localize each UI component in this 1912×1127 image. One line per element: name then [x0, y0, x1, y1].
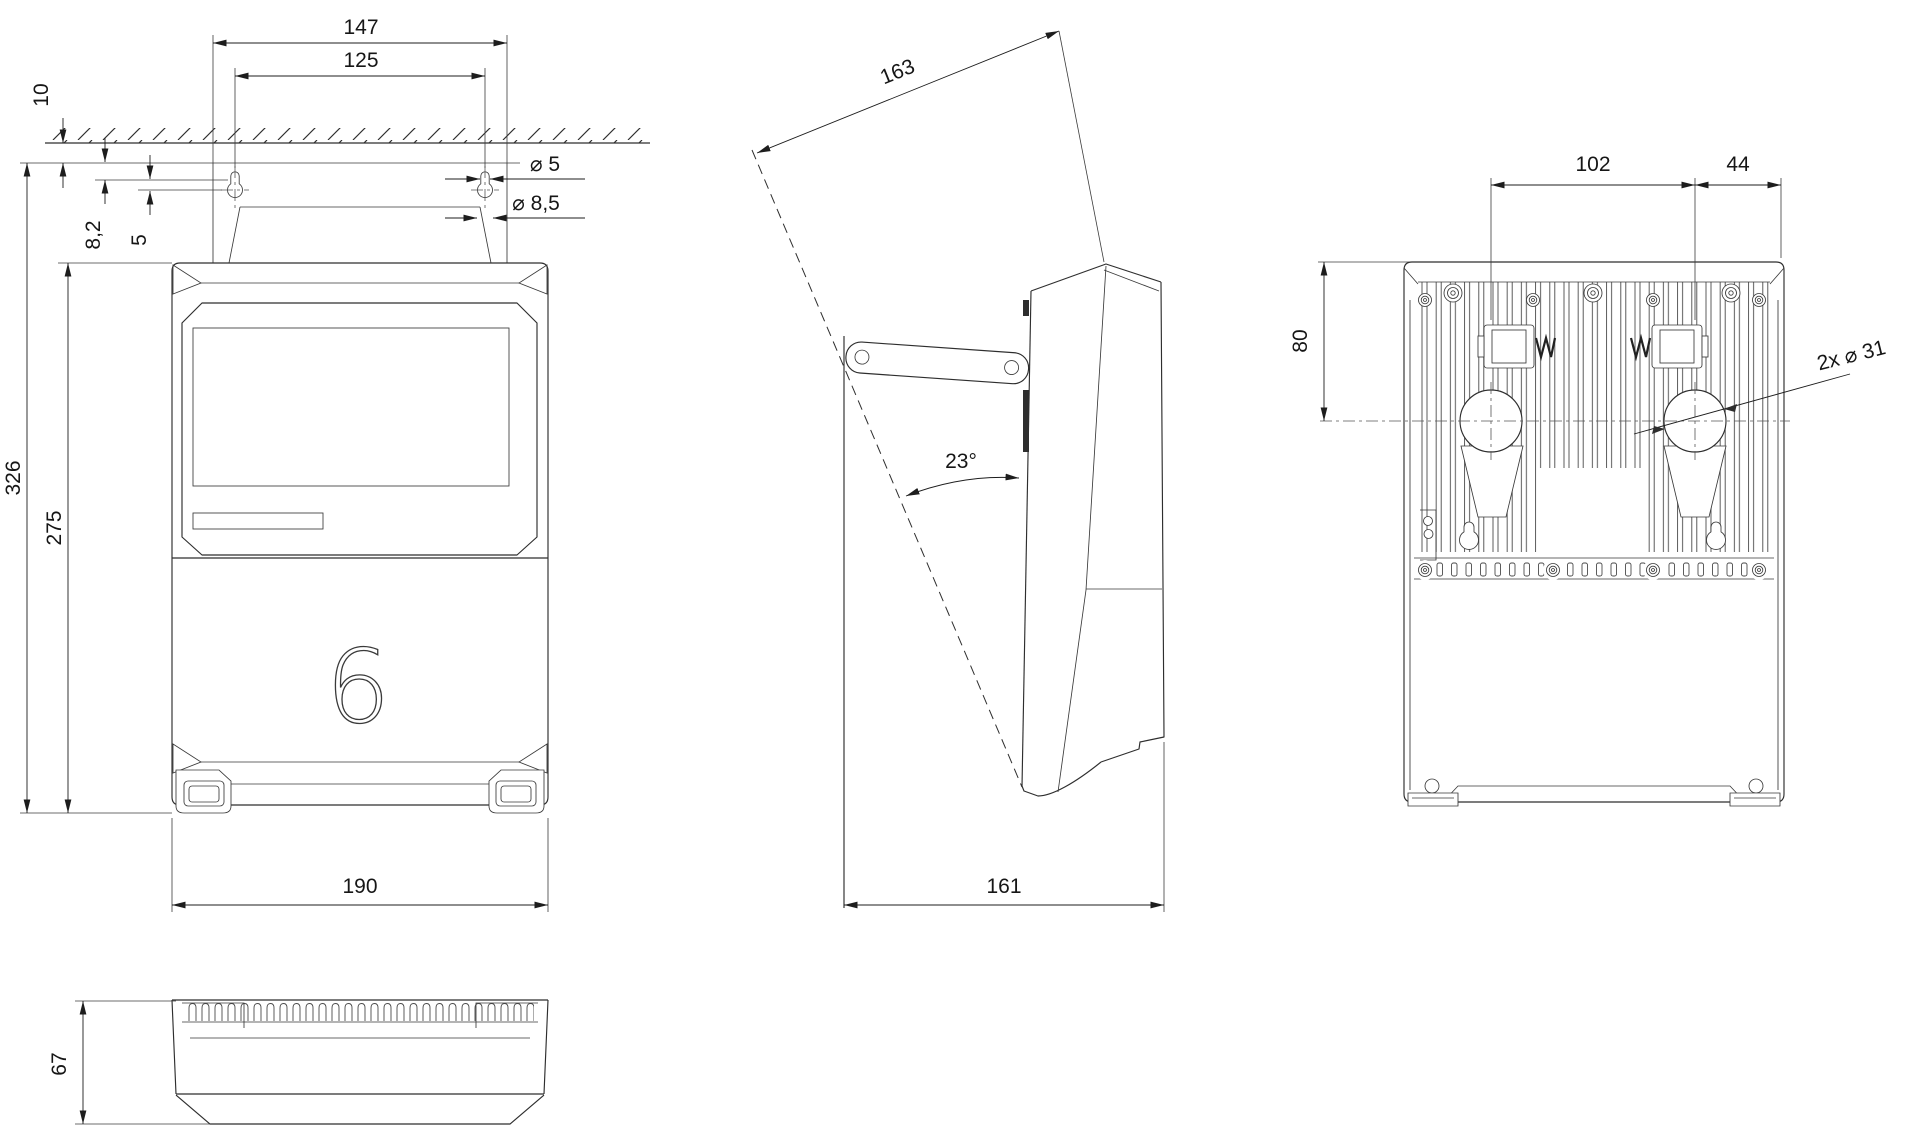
screw-icon [1419, 564, 1432, 577]
bottom-inner-lines [182, 1022, 538, 1038]
dim-front-hole-dia: ⌀ 8,5 [512, 192, 560, 215]
dim-front-plate-width: 147 [343, 16, 378, 39]
screw-icon [1753, 564, 1766, 577]
side-top-edge [1031, 264, 1161, 291]
vent-slot-row [1418, 561, 1770, 578]
dim-side-depth: 161 [986, 875, 1021, 898]
side-top-inner [1104, 270, 1159, 291]
dim-front-slot-dia: ⌀ 5 [530, 153, 560, 176]
dim-front-slot-top-offset: 8,2 [82, 220, 105, 249]
dim-front-body-width: 190 [342, 875, 377, 898]
rear-hook-upper [1023, 300, 1029, 316]
front-view: 147 125 10 8,2 5 ⌀ 5 ⌀ 8,5 326 275 [2, 16, 650, 912]
bottom-front-bevel [176, 1095, 544, 1124]
mounting-plate-edges [213, 163, 507, 263]
dim-front-hole-spacing: 125 [343, 49, 378, 72]
technical-drawing-page: 147 125 10 8,2 5 ⌀ 5 ⌀ 8,5 326 275 [0, 0, 1912, 1127]
dim-rear-hook-to-edge: 44 [1726, 153, 1750, 176]
dim-front-body-height: 275 [43, 510, 66, 545]
dimension-drawing: 147 125 10 8,2 5 ⌀ 5 ⌀ 8,5 326 275 [0, 0, 1912, 1127]
dim-front-slot-length: 5 [128, 234, 151, 246]
screw-icon [1419, 294, 1432, 307]
mounting-plate-trapezoid [229, 207, 491, 263]
side-silhouette-edge [1058, 266, 1106, 792]
screw-icon [1547, 564, 1560, 577]
dim-side-tilt-length: 163 [877, 55, 918, 89]
central-recess [1538, 468, 1648, 552]
rear-foot-right [1730, 793, 1780, 806]
side-front-face [1101, 282, 1164, 762]
screw-icon [1722, 284, 1740, 302]
rear-view: 102 44 80 2x ⌀ 31 [1289, 153, 1888, 806]
angle-arc-23 [906, 477, 1019, 496]
bottom-view: 67 [48, 1000, 548, 1124]
screw-icon [1584, 284, 1602, 302]
wall-bracket-arm [845, 341, 1030, 385]
brand-logo-6: 6 [326, 628, 391, 747]
dim-rear-entry-offset: 80 [1289, 329, 1312, 352]
tilt-position-dashed-line [752, 150, 1022, 787]
screw-icon [1647, 294, 1660, 307]
dim-line-163 [757, 31, 1059, 153]
dim-bottom-depth: 67 [48, 1052, 71, 1075]
dim-front-wall-gap: 10 [30, 83, 53, 106]
dim-rear-hook-spacing: 102 [1575, 153, 1610, 176]
dim-rear-entry-dia: 2x ⌀ 31 [1815, 336, 1888, 375]
dim-front-overall-height: 326 [2, 460, 25, 495]
rear-foot-left [1408, 793, 1458, 806]
screw-icon [1647, 564, 1660, 577]
screw-icon [1444, 284, 1462, 302]
screw-icon [1753, 294, 1766, 307]
keyhole-centerlines [221, 166, 499, 210]
rear-hook-lower [1023, 390, 1029, 452]
wall-hatching [45, 128, 650, 143]
side-view: 163 23° 161 [752, 31, 1164, 912]
screw-icon [1527, 294, 1540, 307]
dim-side-tilt-angle: 23° [945, 450, 977, 473]
